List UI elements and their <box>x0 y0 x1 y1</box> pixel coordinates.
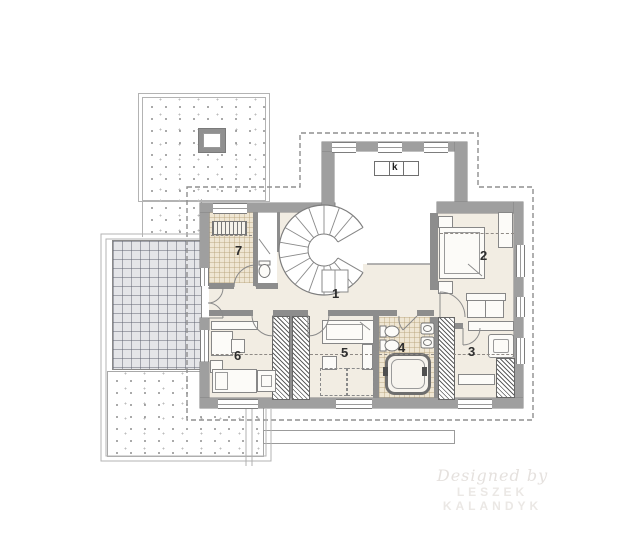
lower-floor-corner-lines <box>246 409 252 466</box>
door-bathroom <box>399 316 417 330</box>
floor-plan-canvas: k <box>0 0 638 556</box>
watermark-line1: Designed by <box>405 466 580 485</box>
sink-1-basin <box>424 326 432 332</box>
door-room3 <box>463 328 480 345</box>
room-label-6: 6 <box>234 348 241 363</box>
room-label-3: 3 <box>468 344 475 359</box>
room-label-2: 2 <box>480 248 487 263</box>
door-room5 <box>308 315 329 336</box>
designer-watermark: Designed by LESZEK KALANDYK <box>405 466 580 513</box>
room-label-7: 7 <box>235 243 242 258</box>
closet-wc-bowl <box>259 265 270 278</box>
room-label-4: 4 <box>398 340 405 355</box>
watermark-line2: LESZEK KALANDYK <box>405 485 580 513</box>
room-label-1: 1 <box>332 286 339 301</box>
door-room7 <box>234 265 256 287</box>
toilet-bowl <box>385 326 399 337</box>
room-label-5: 5 <box>341 345 348 360</box>
door-terrace-french <box>208 288 223 318</box>
sink-2-basin <box>424 340 432 346</box>
door-room2 <box>440 292 465 317</box>
door-room6 <box>252 315 273 336</box>
spiral-staircase <box>279 205 363 295</box>
door-closet-diagonal <box>259 239 270 254</box>
bidet-bowl <box>385 340 399 351</box>
bed-fold-marks <box>360 264 482 330</box>
